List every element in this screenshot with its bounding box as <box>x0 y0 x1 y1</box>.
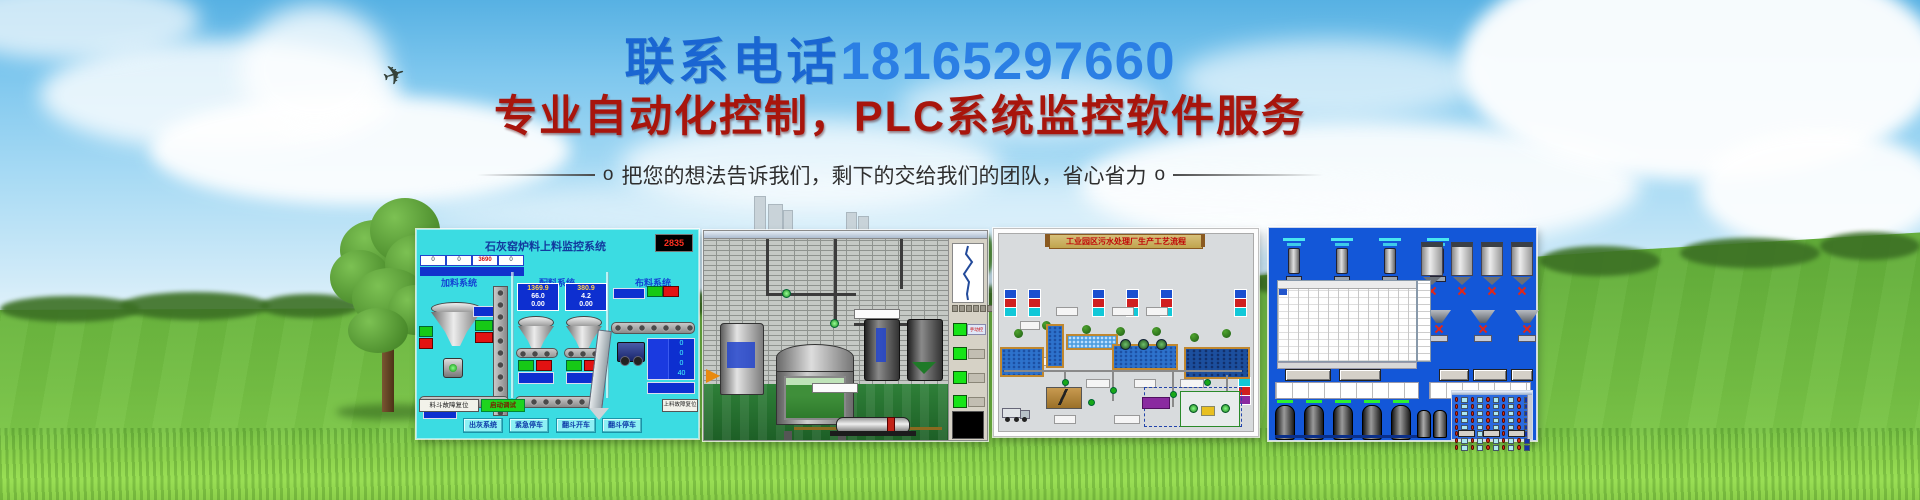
flow-label <box>1056 307 1078 316</box>
silo-unit <box>1451 242 1473 296</box>
aeration-channel <box>1066 334 1118 350</box>
strip-cell: 0 <box>498 255 524 266</box>
tree-icon <box>1222 329 1231 338</box>
flow-label <box>1114 415 1140 424</box>
storage-tank <box>720 323 764 395</box>
status-light-3 <box>953 371 967 384</box>
info-label <box>812 383 858 393</box>
indicator-grid <box>1452 395 1532 451</box>
hopperA-values: 1369.966.00.00 <box>517 283 559 311</box>
reactor-unit <box>1391 400 1411 440</box>
report-table <box>1277 280 1417 362</box>
status-slot <box>968 373 985 383</box>
dist-label-box <box>613 288 645 299</box>
batch-hopper-1 <box>518 316 554 352</box>
indicator-stop <box>536 360 552 371</box>
tagline-right-rule <box>1173 174 1323 176</box>
status-slot <box>968 397 985 407</box>
reactor-unit <box>1304 400 1324 440</box>
tree-icon <box>1014 329 1023 338</box>
treeline <box>1820 232 1920 260</box>
table-axis-column <box>1417 280 1431 362</box>
reactor-unit <box>1275 400 1295 440</box>
tree-icon <box>1190 333 1199 342</box>
ash-system-button: 出灰系统 <box>463 418 503 433</box>
valve-unit <box>1283 238 1305 282</box>
indicator-row <box>1455 404 1530 410</box>
indicator-run <box>566 360 582 371</box>
grit-tank <box>1046 324 1064 368</box>
indicator-window <box>1451 390 1533 440</box>
tipper-cart <box>617 342 645 362</box>
pipe <box>1004 370 1242 372</box>
start-debug-button: 启动调试 <box>481 399 525 412</box>
value-stack <box>1028 289 1041 317</box>
scada-screenshot-wastewater[interactable]: 工业园区污水处理厂生产工艺流程 <box>993 228 1259 437</box>
weigh-hopper-row <box>1427 310 1539 342</box>
silo-unit <box>1511 242 1533 296</box>
pump-dot <box>1204 379 1211 386</box>
banner-endcap <box>1201 234 1205 247</box>
value-stack <box>1092 289 1105 317</box>
cloud <box>240 5 390 135</box>
aerator-wheel <box>1138 339 1149 350</box>
value-stack <box>1004 289 1017 317</box>
weigh-hopper <box>1471 310 1495 342</box>
aerator-wheel <box>1156 339 1167 350</box>
hopper-reset-button: 料斗故障复位 <box>419 399 479 412</box>
building-silhouette <box>846 212 857 232</box>
small-vessel-2 <box>1433 410 1447 438</box>
control-sidebar: 手动控制 <box>948 239 987 440</box>
dark-tank-2 <box>907 319 943 381</box>
reactor-unit <box>1333 400 1353 440</box>
pipe <box>1112 370 1114 401</box>
scada1-value-strip: 0 0 3690 0 <box>420 255 524 266</box>
manual-control-label: 手动控制 <box>967 324 986 335</box>
trend-chart <box>952 243 984 303</box>
valve-indicator <box>830 319 839 328</box>
tipper-start-button: 翻斗开车 <box>556 418 596 433</box>
flow-label <box>1086 379 1110 388</box>
status-light-1 <box>953 323 967 336</box>
rotary-valve <box>443 358 463 378</box>
reactor-row <box>1275 400 1411 440</box>
status-slot <box>968 349 985 359</box>
indicator-stop <box>663 286 679 297</box>
sludge-truck <box>1002 407 1029 420</box>
window-title-bar <box>704 231 987 239</box>
tagline-row: o 把您的想法告诉我们，剩下的交给我们的团队，省心省力 o <box>430 160 1370 190</box>
action-button-2 <box>1473 369 1507 381</box>
treeline <box>120 292 270 320</box>
scada-screenshot-lime-kiln[interactable]: 石灰窑炉料上料监控系统 2835 0 0 3690 0 加料系统 配料系统 布料… <box>416 229 699 439</box>
chart-toolbar <box>952 305 993 312</box>
pipe <box>766 293 856 296</box>
action-button-1 <box>1439 369 1469 381</box>
feed-fault-button: 上料故障复位 <box>662 399 698 412</box>
silo-row <box>1421 242 1533 296</box>
batch-label-1 <box>518 372 554 384</box>
valve-indicator <box>782 289 791 298</box>
report-button-2 <box>1339 369 1381 381</box>
batch-chain-1 <box>516 348 558 358</box>
indicator-row <box>1455 418 1530 424</box>
dewatering-unit <box>1142 397 1170 409</box>
dist-value-table: 0 0 0 40 <box>647 338 695 380</box>
scada1-title: 石灰窑炉料上料监控系统 <box>437 238 654 254</box>
flow-label <box>1020 321 1040 330</box>
strip-cell: 0 <box>446 255 472 266</box>
scada1-clock-display: 2835 <box>655 234 693 252</box>
table-scrollbar <box>1277 362 1417 369</box>
tagline-left-rule <box>477 174 595 176</box>
indicator-scrollbar <box>1527 395 1532 439</box>
building-silhouette <box>783 210 793 232</box>
tree-trunk <box>382 346 394 412</box>
aerator-wheel <box>1120 339 1131 350</box>
report-button-1 <box>1285 369 1331 381</box>
pump-base <box>830 431 916 436</box>
pump-dot <box>1110 387 1117 394</box>
pump-dot <box>1062 379 1069 386</box>
info-label <box>854 309 900 319</box>
reactor-unit <box>1362 400 1382 440</box>
indicator-buttons <box>1458 430 1525 437</box>
section-divider <box>511 272 514 398</box>
clarifier <box>1046 387 1082 409</box>
flow-label <box>1146 307 1168 316</box>
indicator-stop <box>475 332 493 343</box>
treeline <box>0 296 140 322</box>
building-silhouette <box>768 204 783 232</box>
hero-banner[interactable]: ✈ 联系电话18165297660 专业自动化控制，PLC系统监控软件服务 o … <box>0 0 1920 500</box>
settling-basin <box>1184 347 1250 379</box>
indicator-run <box>647 286 663 297</box>
scada3-title: 工业园区污水处理厂生产工艺流程 <box>1049 234 1203 249</box>
headline: 专业自动化控制，PLC系统监控软件服务 <box>430 82 1370 144</box>
indicator-row <box>1455 445 1530 451</box>
control-station <box>1180 391 1240 427</box>
inlet-basin <box>1000 347 1044 377</box>
dark-tank-1 <box>864 319 900 381</box>
indicator-row <box>1455 411 1530 417</box>
dist-conveyor <box>611 322 695 334</box>
strip-cell: 0 <box>420 255 446 266</box>
valve-unit <box>1331 238 1353 282</box>
hopperB-values: 380.94.20.00 <box>565 283 607 311</box>
scada-screenshot-batching[interactable] <box>1268 227 1537 441</box>
tagline-right-bullet: o <box>1155 164 1166 186</box>
weigh-hopper <box>1515 310 1539 342</box>
pipe <box>900 239 903 289</box>
tree-icon <box>1082 325 1091 334</box>
message-box <box>952 411 984 439</box>
scada1-blue-bar <box>420 267 524 276</box>
pipe <box>766 239 769 295</box>
flow-label <box>1112 307 1134 316</box>
status-light-4 <box>953 395 967 408</box>
value-stack <box>1234 289 1247 317</box>
status-light-2 <box>953 347 967 360</box>
action-button-3 <box>1511 369 1533 381</box>
dist-bottom-box <box>647 382 695 394</box>
small-vessel-1 <box>1417 410 1431 438</box>
pump-dot <box>1088 399 1095 406</box>
tree-icon <box>1152 327 1161 336</box>
pipe <box>834 239 837 325</box>
silo-unit <box>1481 242 1503 296</box>
tagline-text: 把您的想法告诉我们，剩下的交给我们的团队，省心省力 <box>622 160 1147 190</box>
flow-arrow <box>706 369 720 383</box>
strip-cell: 3690 <box>472 255 498 266</box>
indicator-row <box>1455 438 1530 444</box>
flow-label <box>1054 415 1076 424</box>
valve-unit <box>1379 238 1401 282</box>
indicator-run <box>475 320 493 331</box>
building-silhouette <box>754 196 766 232</box>
treeline <box>1540 246 1660 276</box>
indicator-row <box>1455 397 1530 403</box>
indicator-run <box>518 360 534 371</box>
tagline-left-bullet: o <box>603 164 614 186</box>
tipper-stop-button: 翻斗停车 <box>602 418 642 433</box>
treeline <box>1680 238 1820 268</box>
reactor-pipe <box>1275 435 1425 438</box>
scada-screenshot-tank-room[interactable]: 手动控制 <box>703 230 988 441</box>
emergency-stop-button: 紧急停车 <box>509 418 549 433</box>
input-strip-left <box>1275 382 1419 399</box>
section-label-feed: 加料系统 <box>419 276 499 289</box>
